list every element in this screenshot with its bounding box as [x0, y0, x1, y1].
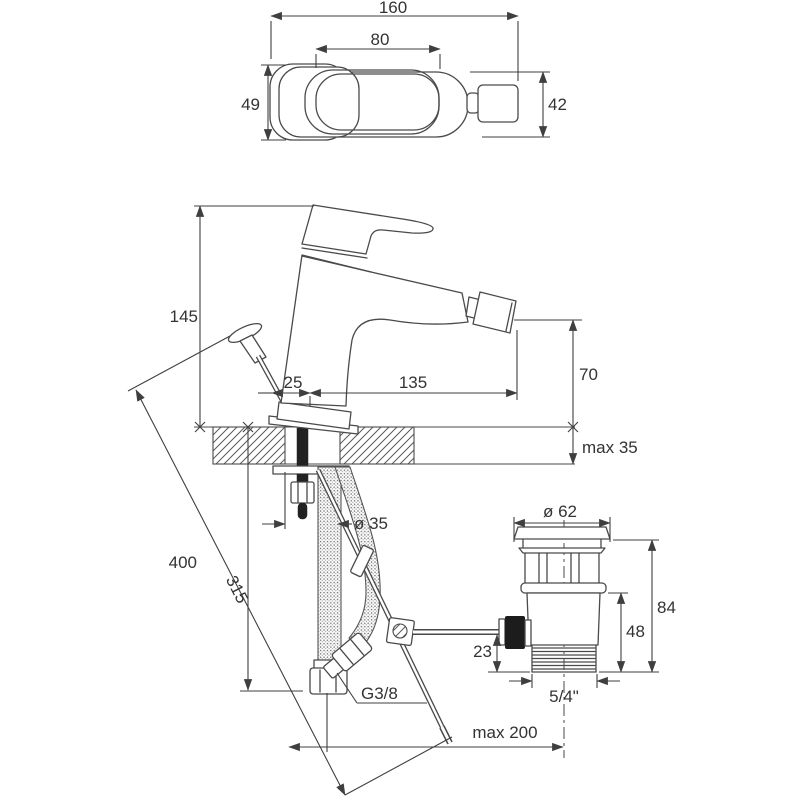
- dim-total-width-label: 160: [379, 0, 407, 17]
- dim-drain-thread-label: 5/4": [549, 687, 579, 706]
- drain-rod-washer: [499, 619, 505, 645]
- dim-depth-right-label: 42: [548, 95, 567, 114]
- dim-deck-thickness-label: max 35: [582, 438, 638, 457]
- faucet-top-view: [270, 64, 518, 140]
- dim-handle-width-label: 80: [371, 30, 390, 49]
- dim-body-height-label: 145: [170, 307, 198, 326]
- clamp-screw: [393, 624, 407, 638]
- dim-drain-total-height-label: 84: [657, 598, 676, 617]
- dim-rod-length-label: 315: [222, 573, 252, 607]
- dim-spout-height-label: 70: [579, 365, 598, 384]
- drain-cage: [525, 553, 599, 583]
- deck-hatch-left: [213, 427, 285, 464]
- drain-rod-knob: [505, 616, 525, 649]
- dim-depth-left-label: 49: [241, 95, 260, 114]
- drain-flange: [514, 527, 610, 539]
- drain-collar: [521, 583, 606, 593]
- drain-plate: [519, 548, 605, 553]
- dim-hose-length-label: 400: [169, 553, 197, 572]
- drain-port-stub: [525, 620, 531, 646]
- dim-hose-thread-label: G3/8: [361, 684, 398, 703]
- dim-rod-offset-label: 25: [284, 373, 303, 392]
- dim-hole-diameter-label: ø 35: [354, 514, 388, 533]
- top-view-aerator: [478, 85, 518, 122]
- top-view-handle-mid: [279, 67, 359, 137]
- dim-drain-body-height-label: 48: [626, 622, 645, 641]
- deck-cross-section: [194, 427, 575, 464]
- dim-flange-diameter-label: ø 62: [543, 502, 577, 521]
- drain-body: [527, 593, 600, 645]
- faucet-side-view: [226, 205, 516, 434]
- dim-rod-reach-label: max 200: [472, 723, 537, 742]
- mounting-nut: [291, 482, 314, 503]
- faucet-lever-handle: [302, 205, 433, 254]
- technical-drawing: 160 80 49 42: [0, 0, 800, 800]
- mounting-stud: [297, 428, 308, 467]
- top-view-spout-neck: [467, 93, 479, 113]
- faucet-body-spout: [281, 255, 468, 406]
- dim-drain-rod-height-label: 23: [473, 642, 492, 661]
- drawing-sheet: 160 80 49 42: [0, 0, 800, 800]
- dim-spout-reach-label: 135: [399, 373, 427, 392]
